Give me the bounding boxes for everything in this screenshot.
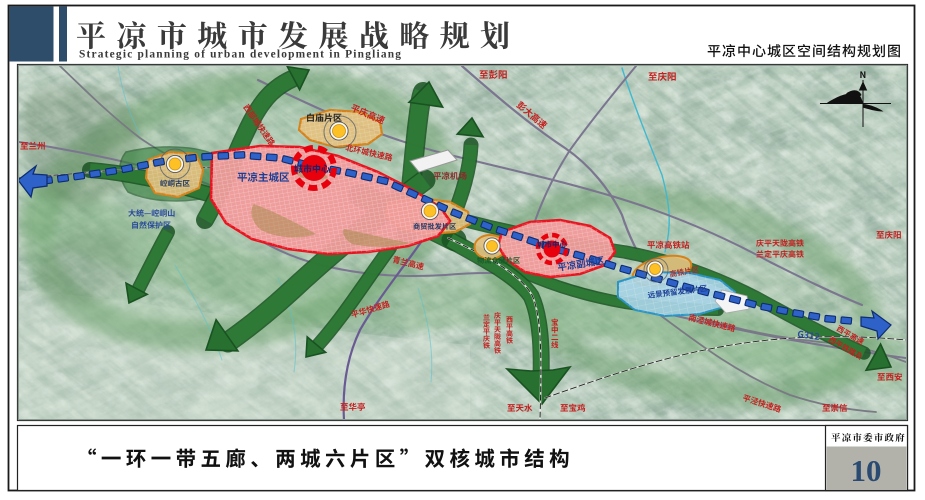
svg-text:10: 10 <box>851 453 882 488</box>
svg-text:Strategic planning of urban de: Strategic planning of urban development … <box>79 49 402 61</box>
